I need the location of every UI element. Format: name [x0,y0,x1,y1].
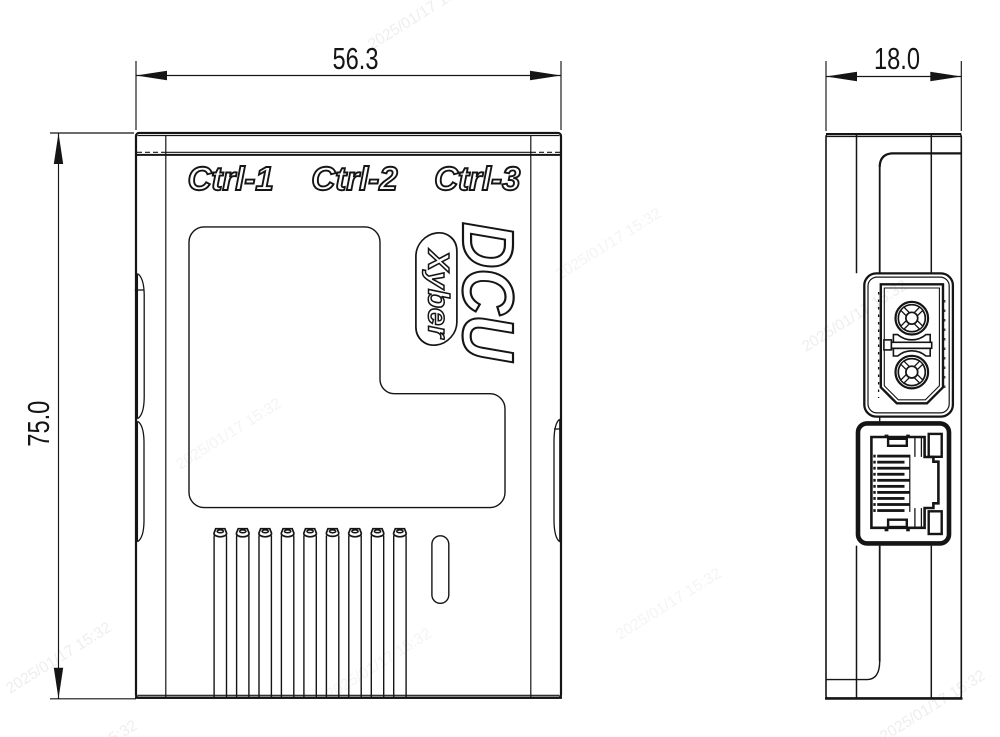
svg-text:56.3: 56.3 [333,41,379,76]
svg-text:Ctrl-2: Ctrl-2 [311,160,398,197]
svg-text:Ctrl-1: Ctrl-1 [188,160,274,197]
svg-text:18.0: 18.0 [874,41,920,76]
svg-text:Xyber: Xyber [422,248,455,341]
svg-text:DCU: DCU [447,222,527,363]
svg-text:75.0: 75.0 [21,401,56,447]
svg-text:Ctrl-3: Ctrl-3 [434,160,520,197]
